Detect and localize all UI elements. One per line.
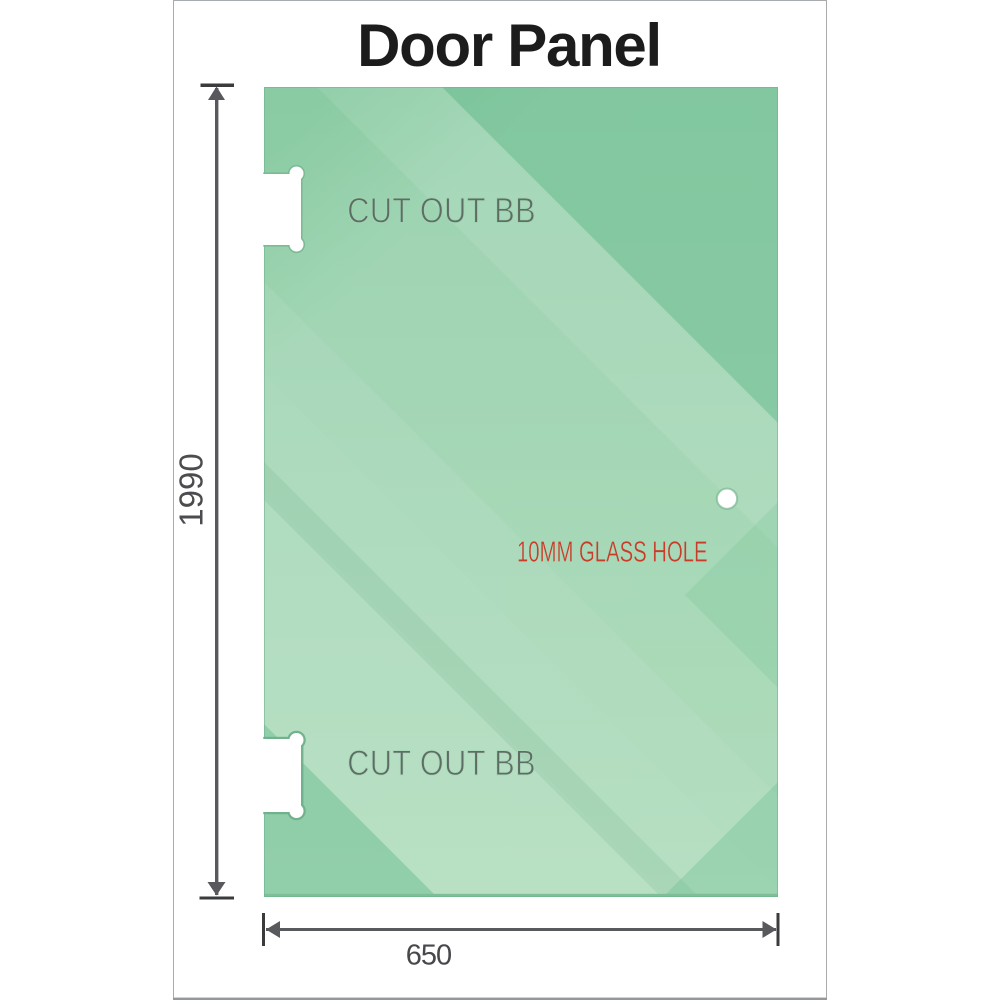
svg-text:CUT OUT BB: CUT OUT BB [347,191,536,230]
svg-text:1990: 1990 [173,453,210,526]
svg-text:CUT OUT BB: CUT OUT BB [347,743,536,782]
svg-text:Door Panel: Door Panel [357,12,661,79]
svg-text:650: 650 [406,940,451,972]
svg-text:10MM GLASS HOLE: 10MM GLASS HOLE [517,536,708,568]
